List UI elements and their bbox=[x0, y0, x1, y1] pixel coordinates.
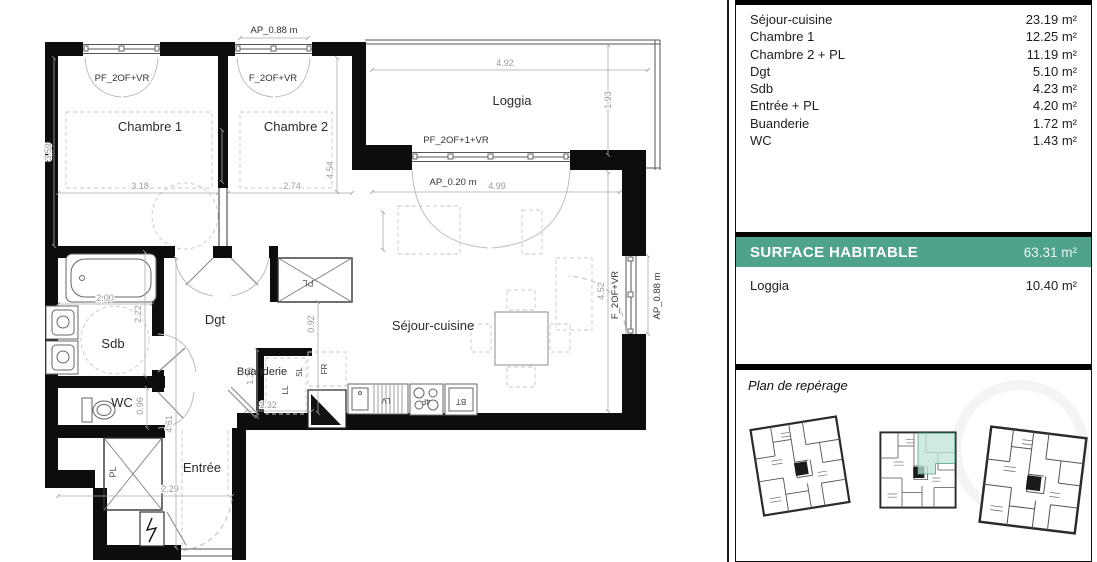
dim-2-00: 2.00 bbox=[96, 293, 114, 303]
panel-divider bbox=[727, 0, 729, 562]
area-row-label: Dgt bbox=[750, 63, 770, 80]
area-row-value: 5.10 m² bbox=[1033, 63, 1077, 80]
dim-0-92: 0.92 bbox=[306, 315, 316, 333]
area-row: Chambre 2 + PL11.19 m² bbox=[736, 46, 1091, 63]
room-label-sdb: Sdb bbox=[101, 336, 124, 351]
appliance-label-hob: 4F bbox=[421, 397, 430, 406]
mini-plan-right bbox=[975, 416, 1090, 544]
dim-4-99: 4.99 bbox=[488, 181, 506, 191]
dim-1-93: 1.93 bbox=[603, 91, 613, 109]
dim-2-74: 2.74 bbox=[283, 181, 301, 191]
appliance-label-dishwasher: LV bbox=[381, 396, 391, 405]
room-label-chambre2: Chambre 2 bbox=[264, 119, 328, 134]
dim-1-32: 1.32 bbox=[259, 400, 277, 410]
area-row-label: Sdb bbox=[750, 80, 773, 97]
mini-plan-middle bbox=[878, 420, 958, 520]
dim-4-92: 4.92 bbox=[496, 58, 514, 68]
reperage-box: Plan de repérage bbox=[735, 370, 1092, 562]
annex-label: Loggia bbox=[750, 277, 789, 294]
room-label-buanderie: Buanderie bbox=[237, 366, 287, 378]
area-row: Dgt5.10 m² bbox=[736, 63, 1091, 80]
label-pf2of1vr-loggia: PF_2OF+1+VR bbox=[423, 135, 489, 146]
area-row: Sdb4.23 m² bbox=[736, 80, 1091, 97]
dim-3-18: 3.18 bbox=[131, 181, 149, 191]
dim-0-96: 0.96 bbox=[135, 397, 145, 415]
mini-plan-left bbox=[747, 411, 853, 520]
summary-panel: Séjour-cuisine23.19 m² Chambre 112.25 m²… bbox=[735, 0, 1094, 562]
surface-title: SURFACE HABITABLE bbox=[750, 244, 918, 261]
area-row: Buanderie1.72 m² bbox=[736, 115, 1091, 132]
annex-value: 10.40 m² bbox=[1026, 277, 1077, 294]
room-label-wc: WC bbox=[111, 395, 133, 410]
area-row-value: 12.25 m² bbox=[1026, 28, 1077, 45]
area-row-value: 4.20 m² bbox=[1033, 97, 1077, 114]
appliance-label-washer: LL bbox=[281, 385, 290, 394]
closet-label-pl-chambre2: PL bbox=[302, 278, 313, 288]
joinery-labels: AP_0.88 m PF_2OF+VR F_2OF+VR PF_2OF+1+VR… bbox=[95, 25, 663, 320]
annex-row: Loggia 10.40 m² bbox=[736, 277, 1091, 294]
label-ap088-right: AP_0.88 m bbox=[652, 272, 663, 319]
dim-2-29: 2.29 bbox=[161, 484, 179, 494]
dim-4-52: 4.52 bbox=[596, 282, 606, 300]
room-label-chambre1: Chambre 1 bbox=[118, 119, 182, 134]
area-row-label: Buanderie bbox=[750, 115, 809, 132]
area-row-label: Séjour-cuisine bbox=[750, 11, 832, 28]
area-row-label: Entrée + PL bbox=[750, 97, 819, 114]
light-partitions bbox=[219, 188, 227, 246]
area-row-value: 4.23 m² bbox=[1033, 80, 1077, 97]
area-row-value: 11.19 m² bbox=[1027, 46, 1077, 63]
room-label-dgt: Dgt bbox=[205, 312, 226, 327]
room-label-sejour: Séjour-cuisine bbox=[392, 318, 474, 333]
area-row: Chambre 112.25 m² bbox=[736, 28, 1091, 45]
dim-2-22: 2.22 bbox=[133, 305, 143, 323]
surface-value: 63.31 m² bbox=[1024, 245, 1077, 260]
floorplan-drawing: 4.92 1.93 4.99 4.52 3.18 2.74 3.59 4.54 … bbox=[0, 0, 728, 562]
surface-banner: SURFACE HABITABLE 63.31 m² bbox=[736, 237, 1091, 267]
label-f2ofvr-sejour: F_2OF+VR bbox=[610, 271, 621, 319]
room-label-loggia: Loggia bbox=[492, 93, 532, 108]
area-row-value: 1.72 m² bbox=[1033, 115, 1077, 132]
room-areas-box: Séjour-cuisine23.19 m² Chambre 112.25 m²… bbox=[735, 0, 1092, 237]
dim-4-61: 4.61 bbox=[164, 415, 174, 433]
appliance-label-dryer: SL bbox=[295, 367, 304, 377]
label-ap020: AP_0.20 m bbox=[430, 177, 477, 188]
area-row-label: Chambre 1 bbox=[750, 28, 814, 45]
label-ap088-top: AP_0.88 m bbox=[251, 25, 298, 36]
area-row-label: Chambre 2 + PL bbox=[750, 46, 845, 63]
area-row-label: WC bbox=[750, 132, 772, 149]
area-row: Entrée + PL4.20 m² bbox=[736, 97, 1091, 114]
label-f2ofvr-chambre2: F_2OF+VR bbox=[249, 73, 297, 84]
closet-label-pl-entree: PL bbox=[108, 466, 118, 477]
dim-3-59: 3.59 bbox=[43, 143, 53, 161]
floorplan-sheet: 4.92 1.93 4.99 4.52 3.18 2.74 3.59 4.54 … bbox=[0, 0, 1097, 562]
surface-box: SURFACE HABITABLE 63.31 m² Loggia 10.40 … bbox=[735, 237, 1092, 370]
label-pf2ofvr-chambre1: PF_2OF+VR bbox=[95, 73, 150, 84]
dim-4-54: 4.54 bbox=[325, 161, 335, 179]
appliance-label-fridge: FR bbox=[320, 363, 329, 374]
appliance-label-bt: BT bbox=[456, 397, 466, 406]
area-row-value: 23.19 m² bbox=[1026, 11, 1077, 28]
area-row-value: 1.43 m² bbox=[1033, 132, 1077, 149]
area-row: WC1.43 m² bbox=[736, 132, 1091, 149]
area-row: Séjour-cuisine23.19 m² bbox=[736, 11, 1091, 28]
room-label-entree: Entrée bbox=[183, 460, 221, 475]
